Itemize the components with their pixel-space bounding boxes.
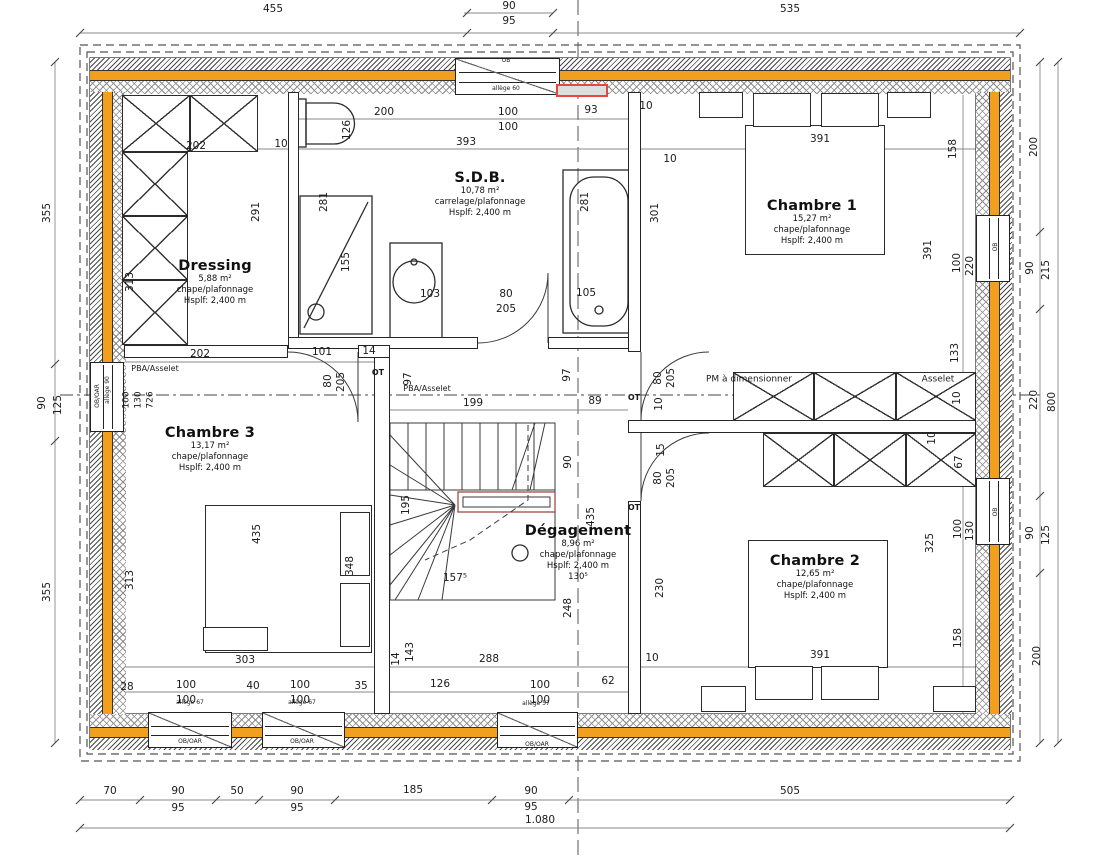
room-finish: chape/plafonnage — [165, 452, 255, 463]
dim-label: 35 — [354, 681, 367, 692]
dim-label: 158 — [948, 139, 959, 159]
dim-label: 355 — [42, 203, 53, 223]
pillow — [821, 666, 879, 700]
dim-label: allège 90 — [105, 376, 111, 404]
dim-label: 202 — [186, 141, 206, 152]
dim-label: 10 — [639, 101, 652, 112]
dim-label: 220 — [1029, 390, 1040, 410]
dim-label: 80 — [499, 289, 512, 300]
dim-label: 155 — [341, 252, 352, 272]
wardrobe-dressing-top-1 — [122, 95, 190, 152]
dim-label: 158 — [953, 628, 964, 648]
dim-label: 200 — [374, 107, 394, 118]
wardrobe-chambre2-2 — [834, 433, 906, 487]
pillow — [753, 93, 811, 127]
dim-label: 100 — [952, 253, 963, 273]
nightstand — [699, 92, 743, 118]
dim-label: 95 — [171, 803, 184, 814]
dim-label: 200 — [1029, 137, 1040, 157]
dim-label: 10 — [663, 154, 676, 165]
dim-label: 130 — [965, 521, 976, 541]
dim-label: OT — [372, 369, 384, 377]
dim-label: 215 — [1041, 260, 1052, 280]
dim-label: 1.080 — [525, 815, 555, 826]
dim-label: 313 — [125, 570, 136, 590]
dim-label: 230 — [655, 578, 666, 598]
dim-label: 100 — [498, 122, 518, 133]
dim-label: 281 — [319, 192, 330, 212]
wall-dressing-sdb — [288, 92, 299, 348]
dim-label: 103 — [420, 289, 440, 300]
dim-label: 100 — [498, 107, 518, 118]
dim-label: 101 — [312, 347, 332, 358]
dim-label: 126 — [342, 120, 353, 140]
pillow — [340, 583, 370, 647]
dim-label: 435 — [252, 524, 263, 544]
dim-label: 202 — [190, 349, 210, 360]
dim-label: allège 60 — [492, 86, 520, 92]
dim-label: 15 — [656, 443, 667, 456]
dim-label: OB/OAR — [525, 742, 549, 748]
dim-label: 133 — [950, 343, 961, 363]
room-label: Chambre 2 12,65 m² chape/plafonnage Hspl… — [770, 553, 860, 602]
room-finish: chape/plafonnage — [767, 225, 857, 236]
dim-label: 80 — [653, 471, 664, 484]
room-label: Dressing 5,88 m² chape/plafonnage Hsplf:… — [177, 258, 254, 307]
dim-label: allège 57 — [522, 701, 550, 707]
dim-label: OT — [628, 394, 640, 402]
dim-label: OB/OAR — [290, 739, 314, 745]
dim-label: 185 — [403, 785, 423, 796]
wall-right — [976, 92, 1010, 714]
dim-label: 205 — [336, 372, 347, 392]
dim-label: 313 — [125, 272, 136, 292]
dim-label: 125 — [53, 395, 64, 415]
dim-label: allège 67 — [288, 700, 316, 706]
dim-label: 505 — [780, 786, 800, 797]
dim-label: 90 — [1025, 526, 1036, 539]
shower — [300, 196, 372, 334]
wall-sdb-bottom-right — [548, 337, 630, 349]
room-area: 5,88 m² — [177, 274, 254, 285]
dim-label: allège 67 — [176, 700, 204, 706]
dim-label: 125 — [1041, 525, 1052, 545]
room-area: 12,65 m² — [770, 569, 860, 580]
nightstand — [887, 92, 931, 118]
room-name: Chambre 3 — [165, 425, 255, 441]
wall-mid-right — [628, 420, 976, 433]
dim-label: 199 — [463, 398, 483, 409]
dim-label: 143 — [405, 642, 416, 662]
dim-label: 726 — [147, 391, 156, 408]
dim-label: 100 — [953, 519, 964, 539]
dim-label: 95 — [502, 16, 515, 27]
dim-label: 89 — [588, 396, 601, 407]
wall-sdb-chambre1 — [628, 92, 641, 352]
dim-label: 10 — [952, 391, 963, 404]
dim-label: 67 — [954, 455, 965, 468]
dim-label: 800 — [1047, 392, 1058, 412]
dim-label: Asselet — [922, 376, 955, 385]
dim-label: 281 — [580, 192, 591, 212]
room-area: 10,78 m² — [435, 186, 526, 197]
room-label: Dégagement 8,96 m² chape/plafonnage Hspl… — [525, 523, 631, 583]
dim-label: 10 — [927, 431, 938, 444]
bench — [203, 627, 268, 651]
room-height: Hsplf: 2,400 m — [177, 296, 254, 307]
room-height: Hsplf: 2,400 m — [525, 561, 631, 572]
room-height: Hsplf: 2,400 m — [767, 236, 857, 247]
dim-label: 205 — [666, 368, 677, 388]
wall-insulation-layer — [989, 92, 1000, 714]
dim-label: 291 — [251, 202, 262, 222]
wardrobe-chambre1-2 — [814, 372, 896, 421]
dim-label: 10 — [654, 397, 665, 410]
wall-render-layer — [1000, 92, 1012, 714]
dim-label: OB — [502, 58, 511, 64]
nightstand — [701, 686, 746, 712]
dim-label: 10 — [645, 653, 658, 664]
dim-label: 205 — [666, 468, 677, 488]
room-area: 13,17 m² — [165, 441, 255, 452]
dim-label: 248 — [563, 598, 574, 618]
dim-label: 90 — [502, 1, 515, 12]
dim-label: 303 — [235, 655, 255, 666]
dim-label: PBA/Asselet — [131, 365, 179, 373]
dim-label: 393 — [456, 137, 476, 148]
dim-label: 195 — [401, 495, 412, 515]
room-label: Chambre 1 15,27 m² chape/plafonnage Hspl… — [767, 198, 857, 247]
dim-label: 391 — [923, 240, 934, 260]
dim-label: 80 — [653, 371, 664, 384]
room-finish: chape/plafonnage — [525, 550, 631, 561]
room-height: Hsplf: 2,400 m — [435, 208, 526, 219]
dim-label: 90 — [563, 455, 574, 468]
room-name: S.D.B. — [435, 170, 526, 186]
dim-label: 100 — [176, 680, 196, 691]
room-name: Dressing — [177, 258, 254, 274]
room-name: Chambre 2 — [770, 553, 860, 569]
dim-label: 95 — [524, 802, 537, 813]
dim-label: 100 — [123, 391, 132, 408]
room-name: Chambre 1 — [767, 198, 857, 214]
room-extra: 130⁵ — [525, 572, 631, 583]
pillow — [821, 93, 879, 127]
dim-label: 95 — [290, 803, 303, 814]
room-label: S.D.B. 10,78 m² carrelage/plafonnage Hsp… — [435, 170, 526, 219]
dim-label: 348 — [345, 556, 356, 576]
dim-label: 288 — [479, 654, 499, 665]
dim-label: 97 — [562, 368, 573, 381]
dim-label: 80 — [323, 374, 334, 387]
nightstand — [933, 686, 976, 712]
dim-label: 535 — [780, 4, 800, 15]
dim-label: 301 — [650, 203, 661, 223]
pillow — [755, 666, 813, 700]
dim-label: 90 — [290, 786, 303, 797]
room-name: Dégagement — [525, 523, 631, 539]
dim-label: OB — [993, 243, 999, 252]
room-finish: chape/plafonnage — [177, 285, 254, 296]
dim-label: 70 — [103, 786, 116, 797]
dim-label: 90 — [37, 396, 48, 409]
wardrobe-chambre2-3 — [906, 433, 976, 487]
dim-label: 355 — [42, 582, 53, 602]
dim-label: PBA/Asselet — [403, 385, 451, 393]
dim-label: 391 — [810, 650, 830, 661]
dim-label: 157⁵ — [443, 573, 467, 584]
dim-label: 130 — [135, 391, 144, 408]
wall-block-layer — [976, 92, 989, 714]
wardrobe-dressing-left-1 — [122, 152, 188, 216]
dim-label: 325 — [925, 533, 936, 553]
floor-plan-canvas: Dressing 5,88 m² chape/plafonnage Hsplf:… — [0, 0, 1101, 859]
dim-label: 14 — [362, 346, 375, 357]
dim-label: 62 — [601, 676, 614, 687]
room-height: Hsplf: 2,400 m — [165, 463, 255, 474]
dim-label: 90 — [171, 786, 184, 797]
dim-label: 93 — [584, 105, 597, 116]
dim-label: 90 — [1025, 261, 1036, 274]
dim-label: 435 — [586, 507, 597, 527]
dim-label: 28 — [120, 682, 133, 693]
room-height: Hsplf: 2,400 m — [770, 591, 860, 602]
dim-label: OB/OAR — [95, 384, 101, 408]
dim-label: 105 — [576, 288, 596, 299]
wardrobe-chambre2-1 — [763, 433, 834, 487]
room-area: 8,96 m² — [525, 539, 631, 550]
radiator-highlight — [556, 84, 608, 97]
dim-label: 50 — [230, 786, 243, 797]
dim-label: 100 — [530, 680, 550, 691]
dim-label: 205 — [496, 304, 516, 315]
room-area: 15,27 m² — [767, 214, 857, 225]
dim-label: 391 — [810, 134, 830, 145]
dim-label: 455 — [263, 4, 283, 15]
dim-label: 97 — [403, 372, 414, 385]
dim-label: 10 — [274, 139, 287, 150]
wall-stairs-left — [374, 352, 390, 714]
room-finish: carrelage/plafonnage — [435, 197, 526, 208]
dim-label: PM à dimensionner — [706, 376, 792, 385]
room-finish: chape/plafonnage — [770, 580, 860, 591]
dim-label: 14 — [391, 652, 402, 665]
dim-label: 40 — [246, 681, 259, 692]
dim-label: OB/OAR — [178, 739, 202, 745]
dim-label: 100 — [290, 680, 310, 691]
dim-label: 200 — [1032, 646, 1043, 666]
dim-label: 126 — [430, 679, 450, 690]
dim-label: 220 — [965, 256, 976, 276]
dim-label: OT — [628, 504, 640, 512]
room-label: Chambre 3 13,17 m² chape/plafonnage Hspl… — [165, 425, 255, 474]
dim-label: OB — [993, 508, 999, 517]
dim-label: 90 — [524, 786, 537, 797]
bathtub — [563, 170, 635, 333]
